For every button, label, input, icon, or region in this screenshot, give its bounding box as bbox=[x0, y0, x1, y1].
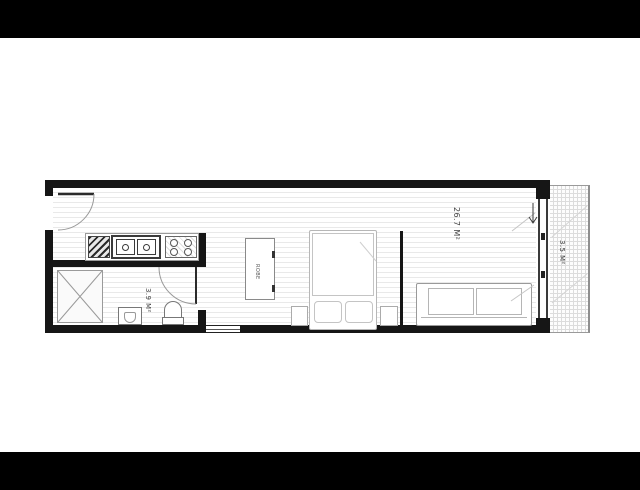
sliding-door bbox=[538, 199, 548, 318]
hinge-mark bbox=[272, 251, 275, 258]
wall-top bbox=[45, 180, 536, 188]
burner-icon bbox=[184, 248, 192, 256]
sofa-cushion bbox=[428, 288, 474, 315]
wall-bottom-left bbox=[45, 325, 198, 333]
door-handle-mark bbox=[541, 233, 545, 240]
hinge-mark bbox=[272, 285, 275, 292]
wall-bottom-main bbox=[240, 325, 536, 333]
sofa bbox=[416, 283, 532, 326]
wall-stub-bathroom bbox=[198, 310, 206, 333]
living-area-label: 26.7 M² bbox=[452, 207, 461, 240]
nightstand-left bbox=[291, 306, 308, 326]
bottom-matte-bar bbox=[0, 452, 640, 490]
sofa-front-edge bbox=[421, 317, 527, 318]
floor-plan-image: ROBE 26.7 M² 3.9 M² 3.5 M² bbox=[0, 0, 640, 490]
wall-left bbox=[45, 230, 53, 333]
bed-duvet bbox=[312, 233, 374, 296]
kitchen-drainer bbox=[88, 236, 110, 258]
sink-bowl-left bbox=[116, 239, 135, 255]
burner-icon bbox=[170, 248, 178, 256]
sink-bowl-right bbox=[137, 239, 156, 255]
wardrobe-label: ROBE bbox=[254, 264, 260, 280]
wardrobe-cabinet bbox=[245, 238, 275, 300]
bottom-window bbox=[206, 325, 240, 333]
top-matte-bar bbox=[0, 0, 640, 38]
burner-icon bbox=[184, 239, 192, 247]
kitchen-double-sink bbox=[111, 235, 161, 259]
wall-stub-kitchen bbox=[199, 233, 206, 267]
pillow-left bbox=[314, 301, 342, 323]
burner-icon bbox=[170, 239, 178, 247]
wall-kitchen-bath-divider bbox=[53, 260, 199, 267]
drain-icon bbox=[122, 244, 129, 251]
pillow-right bbox=[345, 301, 373, 323]
balcony-area-label: 3.5 M² bbox=[558, 240, 566, 265]
basin-icon bbox=[124, 312, 136, 323]
nightstand-right bbox=[380, 306, 398, 326]
bathroom-area-label: 3.9 M² bbox=[144, 288, 152, 313]
wall-pier-top-right bbox=[536, 180, 550, 199]
cooktop bbox=[165, 236, 197, 258]
shower bbox=[57, 270, 103, 323]
door-handle-mark bbox=[541, 271, 545, 278]
wall-left-above-door bbox=[45, 180, 53, 196]
drain-icon bbox=[143, 244, 150, 251]
bathroom-vanity bbox=[118, 307, 142, 325]
balcony-tiles bbox=[550, 185, 590, 333]
toilet-tank bbox=[162, 317, 184, 325]
sofa-cushion bbox=[476, 288, 522, 315]
wall-pier-bottom-right bbox=[536, 318, 550, 333]
partition-bed-living bbox=[400, 231, 403, 325]
